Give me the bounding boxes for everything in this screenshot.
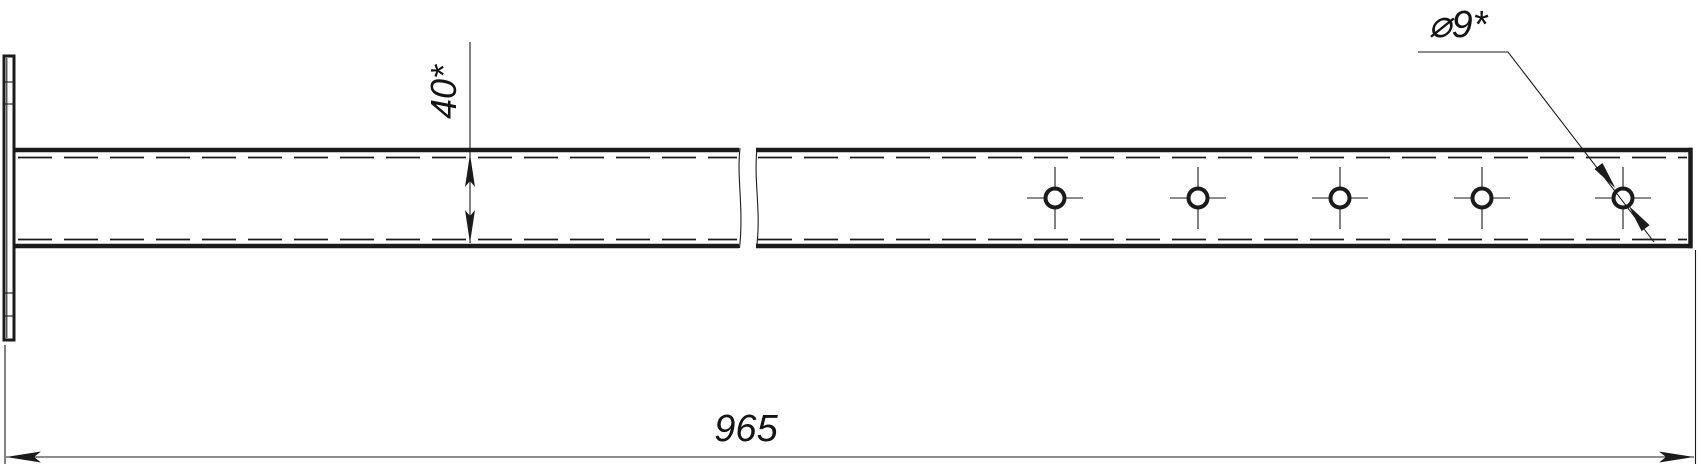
length-dimension: 965	[5, 250, 1696, 464]
leader-arrow-upper	[1595, 163, 1616, 188]
hole	[1454, 167, 1510, 229]
bar-outline	[14, 148, 1692, 248]
hole	[1027, 167, 1083, 229]
leader-arrow-lower	[1629, 206, 1650, 231]
engineering-drawing: 40* 965 ⌀9*	[0, 0, 1698, 472]
break-symbol	[739, 148, 758, 248]
drawing-canvas: 40* 965 ⌀9*	[0, 0, 1698, 472]
length-dimension-label: 965	[714, 408, 778, 450]
hole-circle	[1614, 189, 1633, 208]
hole-circle	[1331, 189, 1350, 208]
hole	[1170, 167, 1226, 229]
end-plate-outline	[4, 56, 14, 340]
hole-diameter-label: ⌀9*	[1429, 4, 1489, 46]
break-line-left	[739, 148, 741, 248]
hole-circle	[1189, 189, 1208, 208]
hole-circle	[1046, 189, 1065, 208]
end-plate	[4, 56, 14, 340]
hidden-lines	[18, 158, 1687, 240]
hole	[1312, 167, 1368, 229]
leader-line	[1418, 52, 1654, 242]
hole-circle	[1473, 189, 1492, 208]
holes-group	[1027, 167, 1651, 229]
height-dimension-label: 40*	[423, 64, 464, 119]
break-line-right	[756, 148, 758, 248]
height-dimension: 40*	[423, 42, 475, 243]
